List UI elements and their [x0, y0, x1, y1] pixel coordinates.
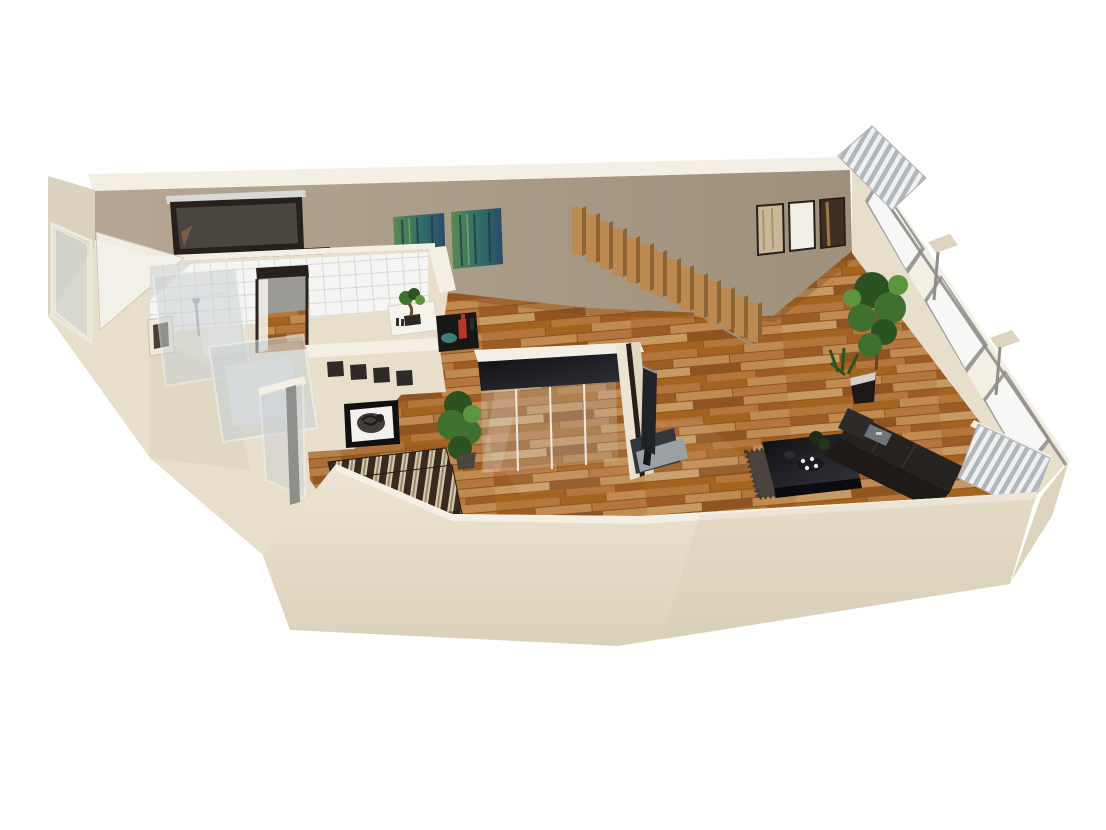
stair-tread — [626, 236, 636, 284]
wall-cutout — [350, 364, 367, 380]
stair-tread — [721, 287, 731, 330]
small-bowl — [784, 451, 796, 459]
framed-panel-white — [789, 201, 815, 251]
stair-tread — [599, 221, 609, 270]
plate-item — [805, 466, 809, 470]
counter-bottle — [396, 318, 399, 326]
plate-item — [810, 457, 814, 461]
framed-panel-dark — [820, 198, 845, 248]
stair-tread — [680, 265, 690, 311]
stair-tread — [572, 206, 582, 256]
wall-cutout — [327, 361, 344, 377]
wall-cutout — [396, 370, 413, 386]
stair-tread — [667, 258, 677, 304]
stair-tread — [748, 302, 758, 343]
red-vase — [458, 319, 467, 339]
floorplan-render — [0, 0, 1106, 830]
stair-tread — [613, 228, 623, 277]
stair-tread — [694, 273, 704, 318]
plate-item — [801, 459, 805, 463]
tv-screen — [641, 367, 657, 455]
teal-bowl — [441, 333, 457, 343]
stair-tread — [586, 213, 596, 263]
stair-tread — [640, 243, 650, 291]
vanity-mirror-glass — [176, 203, 298, 249]
stair-tread — [653, 250, 663, 297]
stair-tread — [707, 280, 717, 324]
diptych-painting-right — [451, 208, 503, 269]
counter-bottle — [401, 319, 404, 326]
plate-item — [814, 464, 818, 468]
framed-panel-beige — [757, 204, 784, 255]
wall-cutout — [373, 367, 390, 383]
dark-bottle — [470, 318, 474, 330]
stair-tread — [734, 295, 744, 337]
